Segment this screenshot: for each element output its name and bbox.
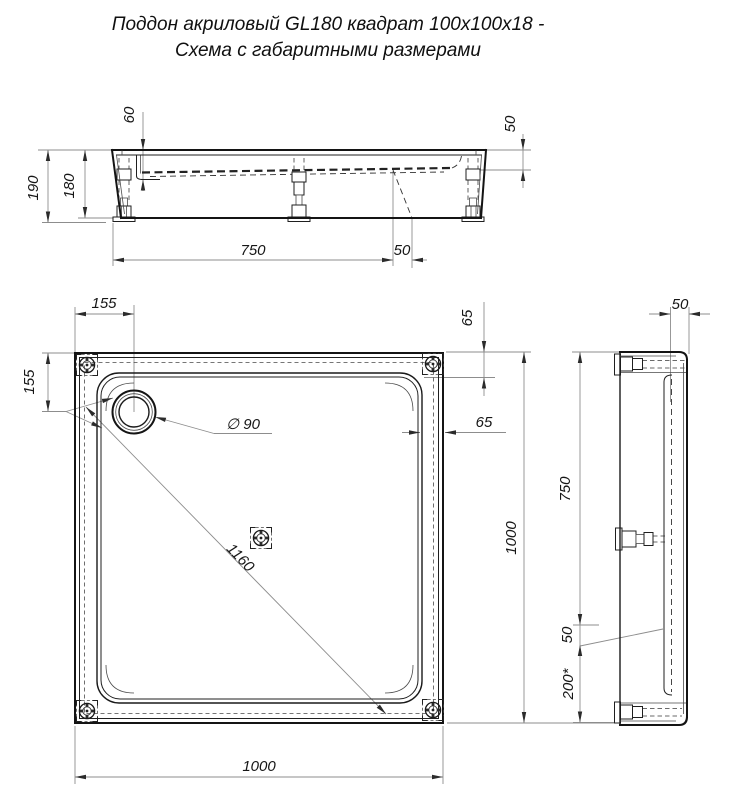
dim-front-tray-height: 180 [61, 173, 78, 199]
dim-side-feet-span: 750 [557, 476, 574, 502]
plan-view: 155 155 ∅ 90 65 65 1160 1000 1000 [21, 295, 619, 784]
front-elevation-view: 60 50 190 180 750 50 [25, 106, 531, 268]
dim-front-total-height: 190 [25, 175, 42, 201]
side-foot-top [615, 354, 643, 375]
label-drain-diameter: ∅ 90 [226, 416, 261, 433]
drawing-title-line2: Схема с габаритными размерами [175, 40, 481, 61]
shower-tray-drawing: Поддон акриловый GL180 квадрат 100x100x1… [0, 0, 732, 800]
dim-plan-drain-offset-y: 155 [21, 369, 38, 395]
drawing-title: Поддон акриловый GL180 квадрат 100x100x1… [112, 14, 545, 61]
dim-plan-rim-inset-right: 65 [476, 414, 493, 431]
side-view: 50 750 50 200* [557, 296, 710, 725]
dim-plan-depth: 1000 [503, 521, 520, 555]
dim-front-feet-offset: 50 [394, 242, 411, 259]
front-leg-center [288, 158, 310, 222]
dim-front-feet-span: 750 [240, 242, 266, 259]
side-foot-middle [616, 528, 654, 550]
side-foot-bottom [615, 702, 643, 723]
dim-side-rim-width: 50 [672, 296, 689, 313]
corner-foot-bottom-right [423, 700, 444, 721]
dim-front-basin-depth: 60 [121, 106, 138, 123]
dim-plan-drain-offset-x: 155 [91, 295, 117, 312]
offset-leader-dashed [393, 170, 412, 218]
dim-side-feet-gap: 50 [559, 626, 576, 643]
dim-plan-diagonal: 1160 [223, 540, 258, 575]
center-foot [251, 528, 272, 549]
technical-drawing-page: Поддон акриловый GL180 квадрат 100x100x1… [0, 0, 732, 800]
dim-front-rim-drop: 50 [502, 115, 519, 132]
drawing-title-line1: Поддон акриловый GL180 квадрат 100x100x1… [112, 14, 545, 35]
dim-side-edge-offset: 200* [560, 667, 577, 700]
dim-plan-width: 1000 [242, 758, 276, 775]
dim-plan-rim-inset-top: 65 [459, 309, 476, 326]
corner-foot-top-right [423, 354, 444, 375]
